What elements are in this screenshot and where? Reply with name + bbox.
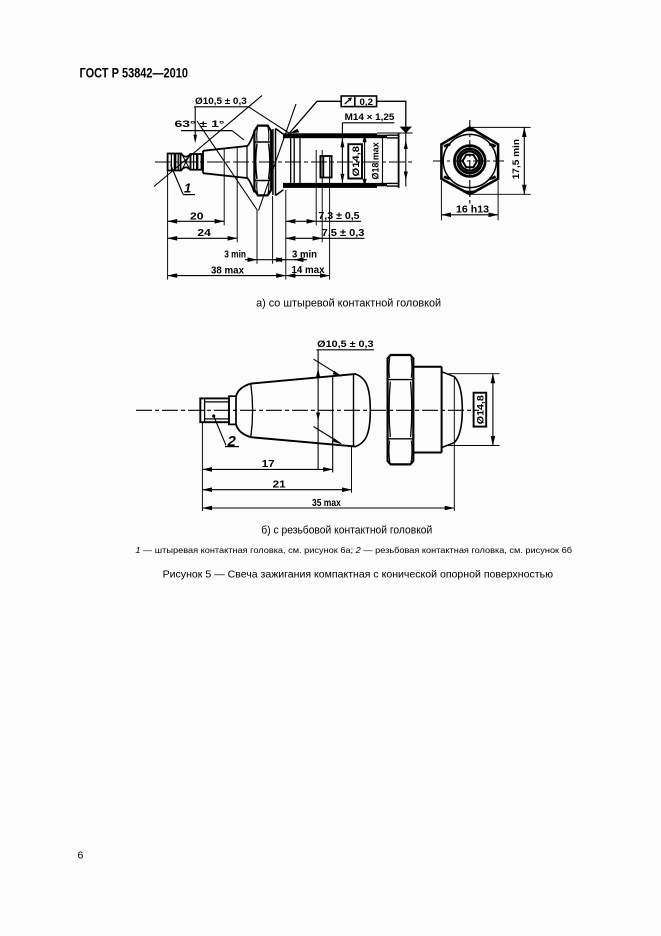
svg-text:7,5 ± 0,3: 7,5 ± 0,3 xyxy=(322,228,365,239)
svg-text:38 max: 38 max xyxy=(211,265,244,276)
svg-text:14 max: 14 max xyxy=(292,265,325,276)
svg-text:ГОСТ Р 53842—2010: ГОСТ Р 53842—2010 xyxy=(80,65,189,81)
svg-text:0,2: 0,2 xyxy=(360,97,374,108)
svg-text:63° ± 1°: 63° ± 1° xyxy=(175,119,225,130)
svg-text:Ø10,5 ± 0,3: Ø10,5 ± 0,3 xyxy=(317,339,373,350)
svg-text:35 max: 35 max xyxy=(312,498,341,509)
svg-text:Рисунок 5 — Свеча зажигания ко: Рисунок 5 — Свеча зажигания компактная с… xyxy=(163,568,554,580)
svg-text:7,3 ± 0,5: 7,3 ± 0,5 xyxy=(318,211,360,222)
svg-text:17: 17 xyxy=(262,459,276,470)
svg-text:20: 20 xyxy=(190,211,204,222)
svg-text:Ø14,8: Ø14,8 xyxy=(476,395,486,424)
svg-text:24: 24 xyxy=(197,228,211,239)
svg-text:16 h13: 16 h13 xyxy=(456,205,489,216)
svg-text:Ø10,5 ± 0,3: Ø10,5 ± 0,3 xyxy=(195,96,247,107)
svg-text:а) со штыревой контактной гол: а) со штыревой контактной головкой xyxy=(256,298,441,310)
svg-text:1 — штыревая контактная головк: 1 — штыревая контактная головка, см. рис… xyxy=(135,545,572,555)
svg-text:17,5 min: 17,5 min xyxy=(511,139,521,179)
svg-text:Ø14,8: Ø14,8 xyxy=(351,146,361,177)
svg-text:3 min: 3 min xyxy=(224,249,246,260)
svg-text:21: 21 xyxy=(273,479,287,490)
svg-text:M14 × 1,25: M14 × 1,25 xyxy=(345,112,396,123)
svg-text:Ø18 max: Ø18 max xyxy=(371,142,381,179)
svg-text:2: 2 xyxy=(227,433,237,450)
svg-text:1: 1 xyxy=(184,181,191,196)
svg-text:3 min: 3 min xyxy=(292,249,317,260)
svg-text:б) с резьбовой контактной гол: б) с резьбовой контактной головкой xyxy=(261,525,432,537)
svg-text:6: 6 xyxy=(78,850,84,862)
